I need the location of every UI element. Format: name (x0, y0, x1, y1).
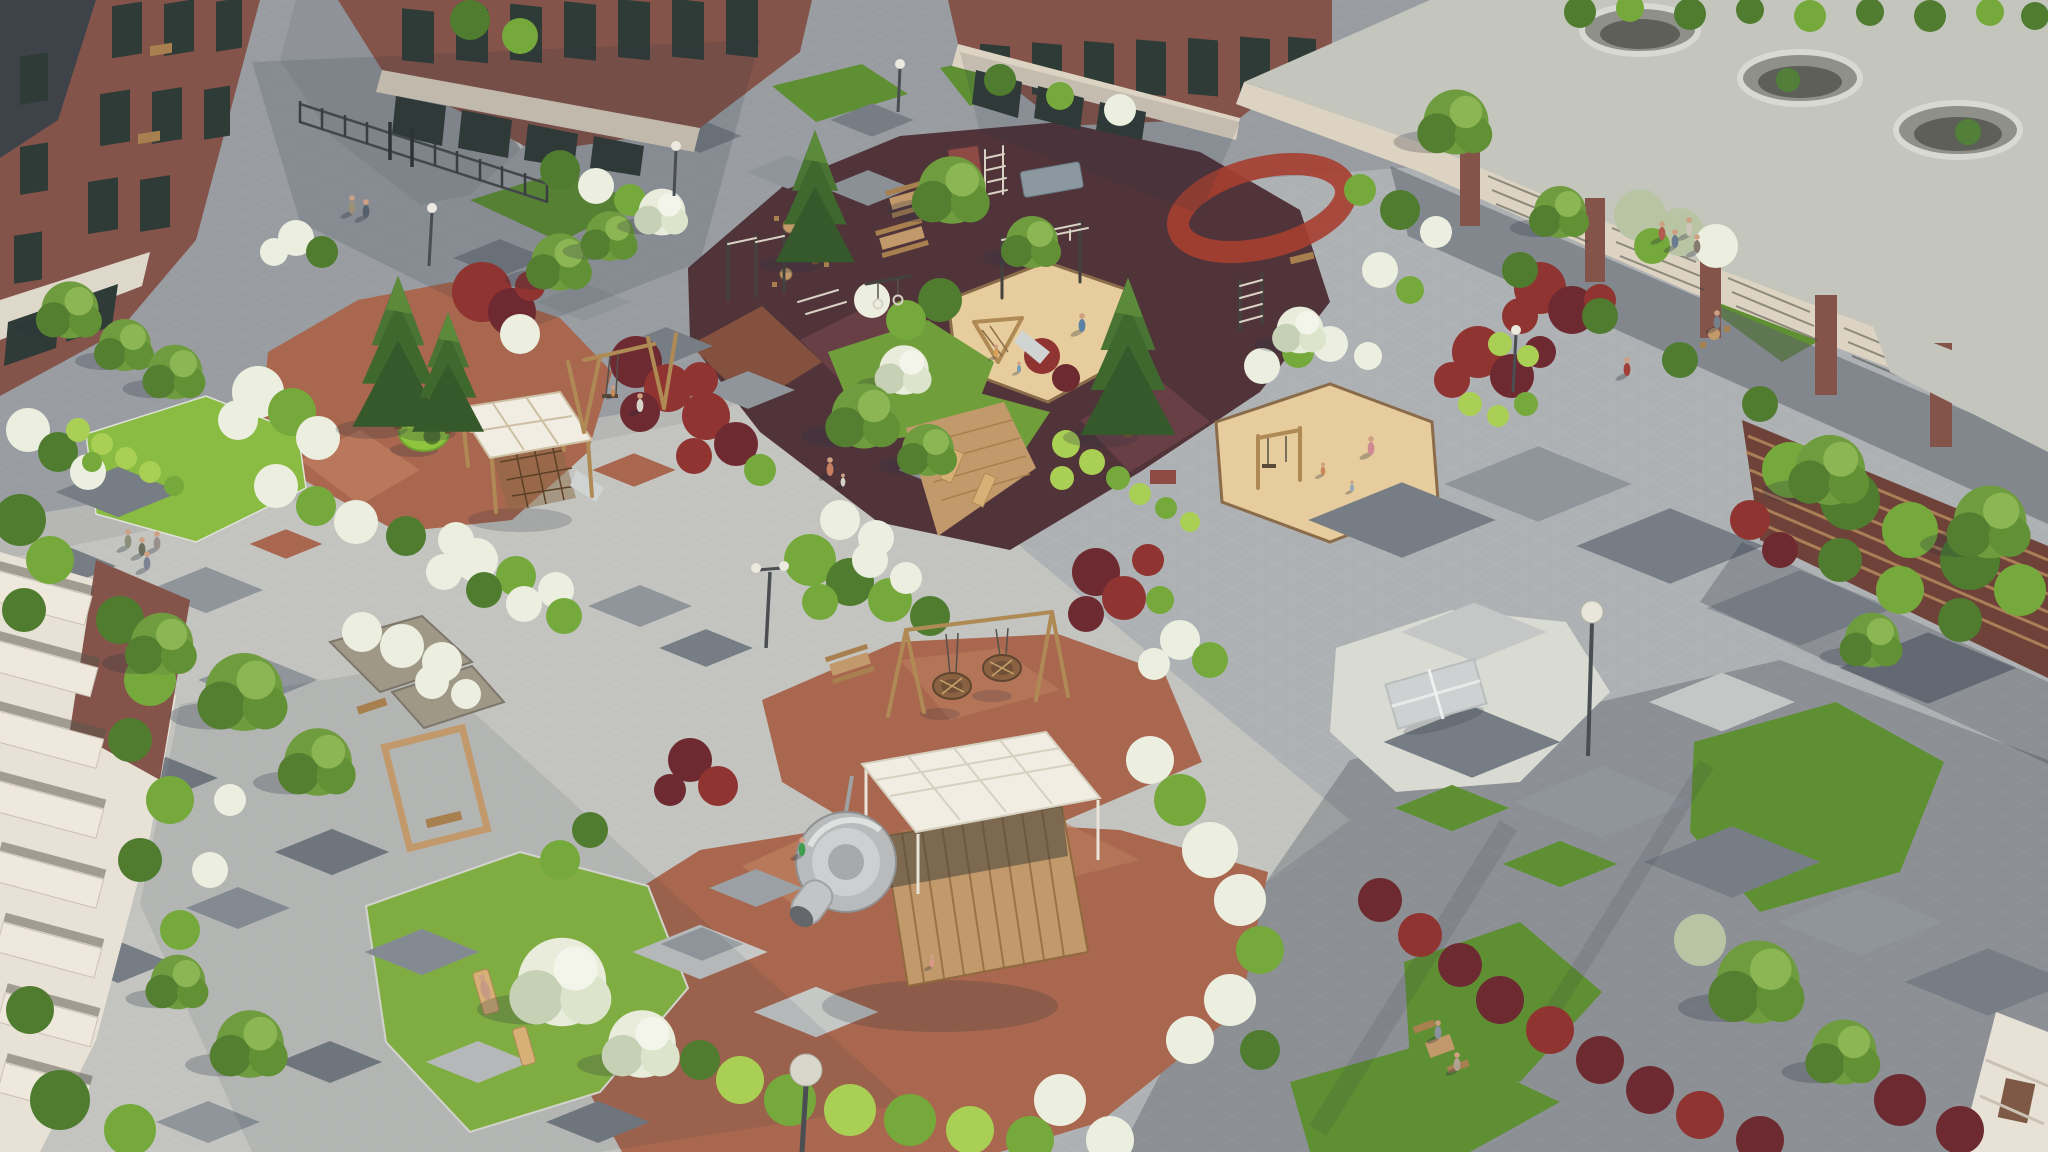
courtyard-render (0, 0, 2048, 1152)
step-box (1150, 470, 1176, 484)
